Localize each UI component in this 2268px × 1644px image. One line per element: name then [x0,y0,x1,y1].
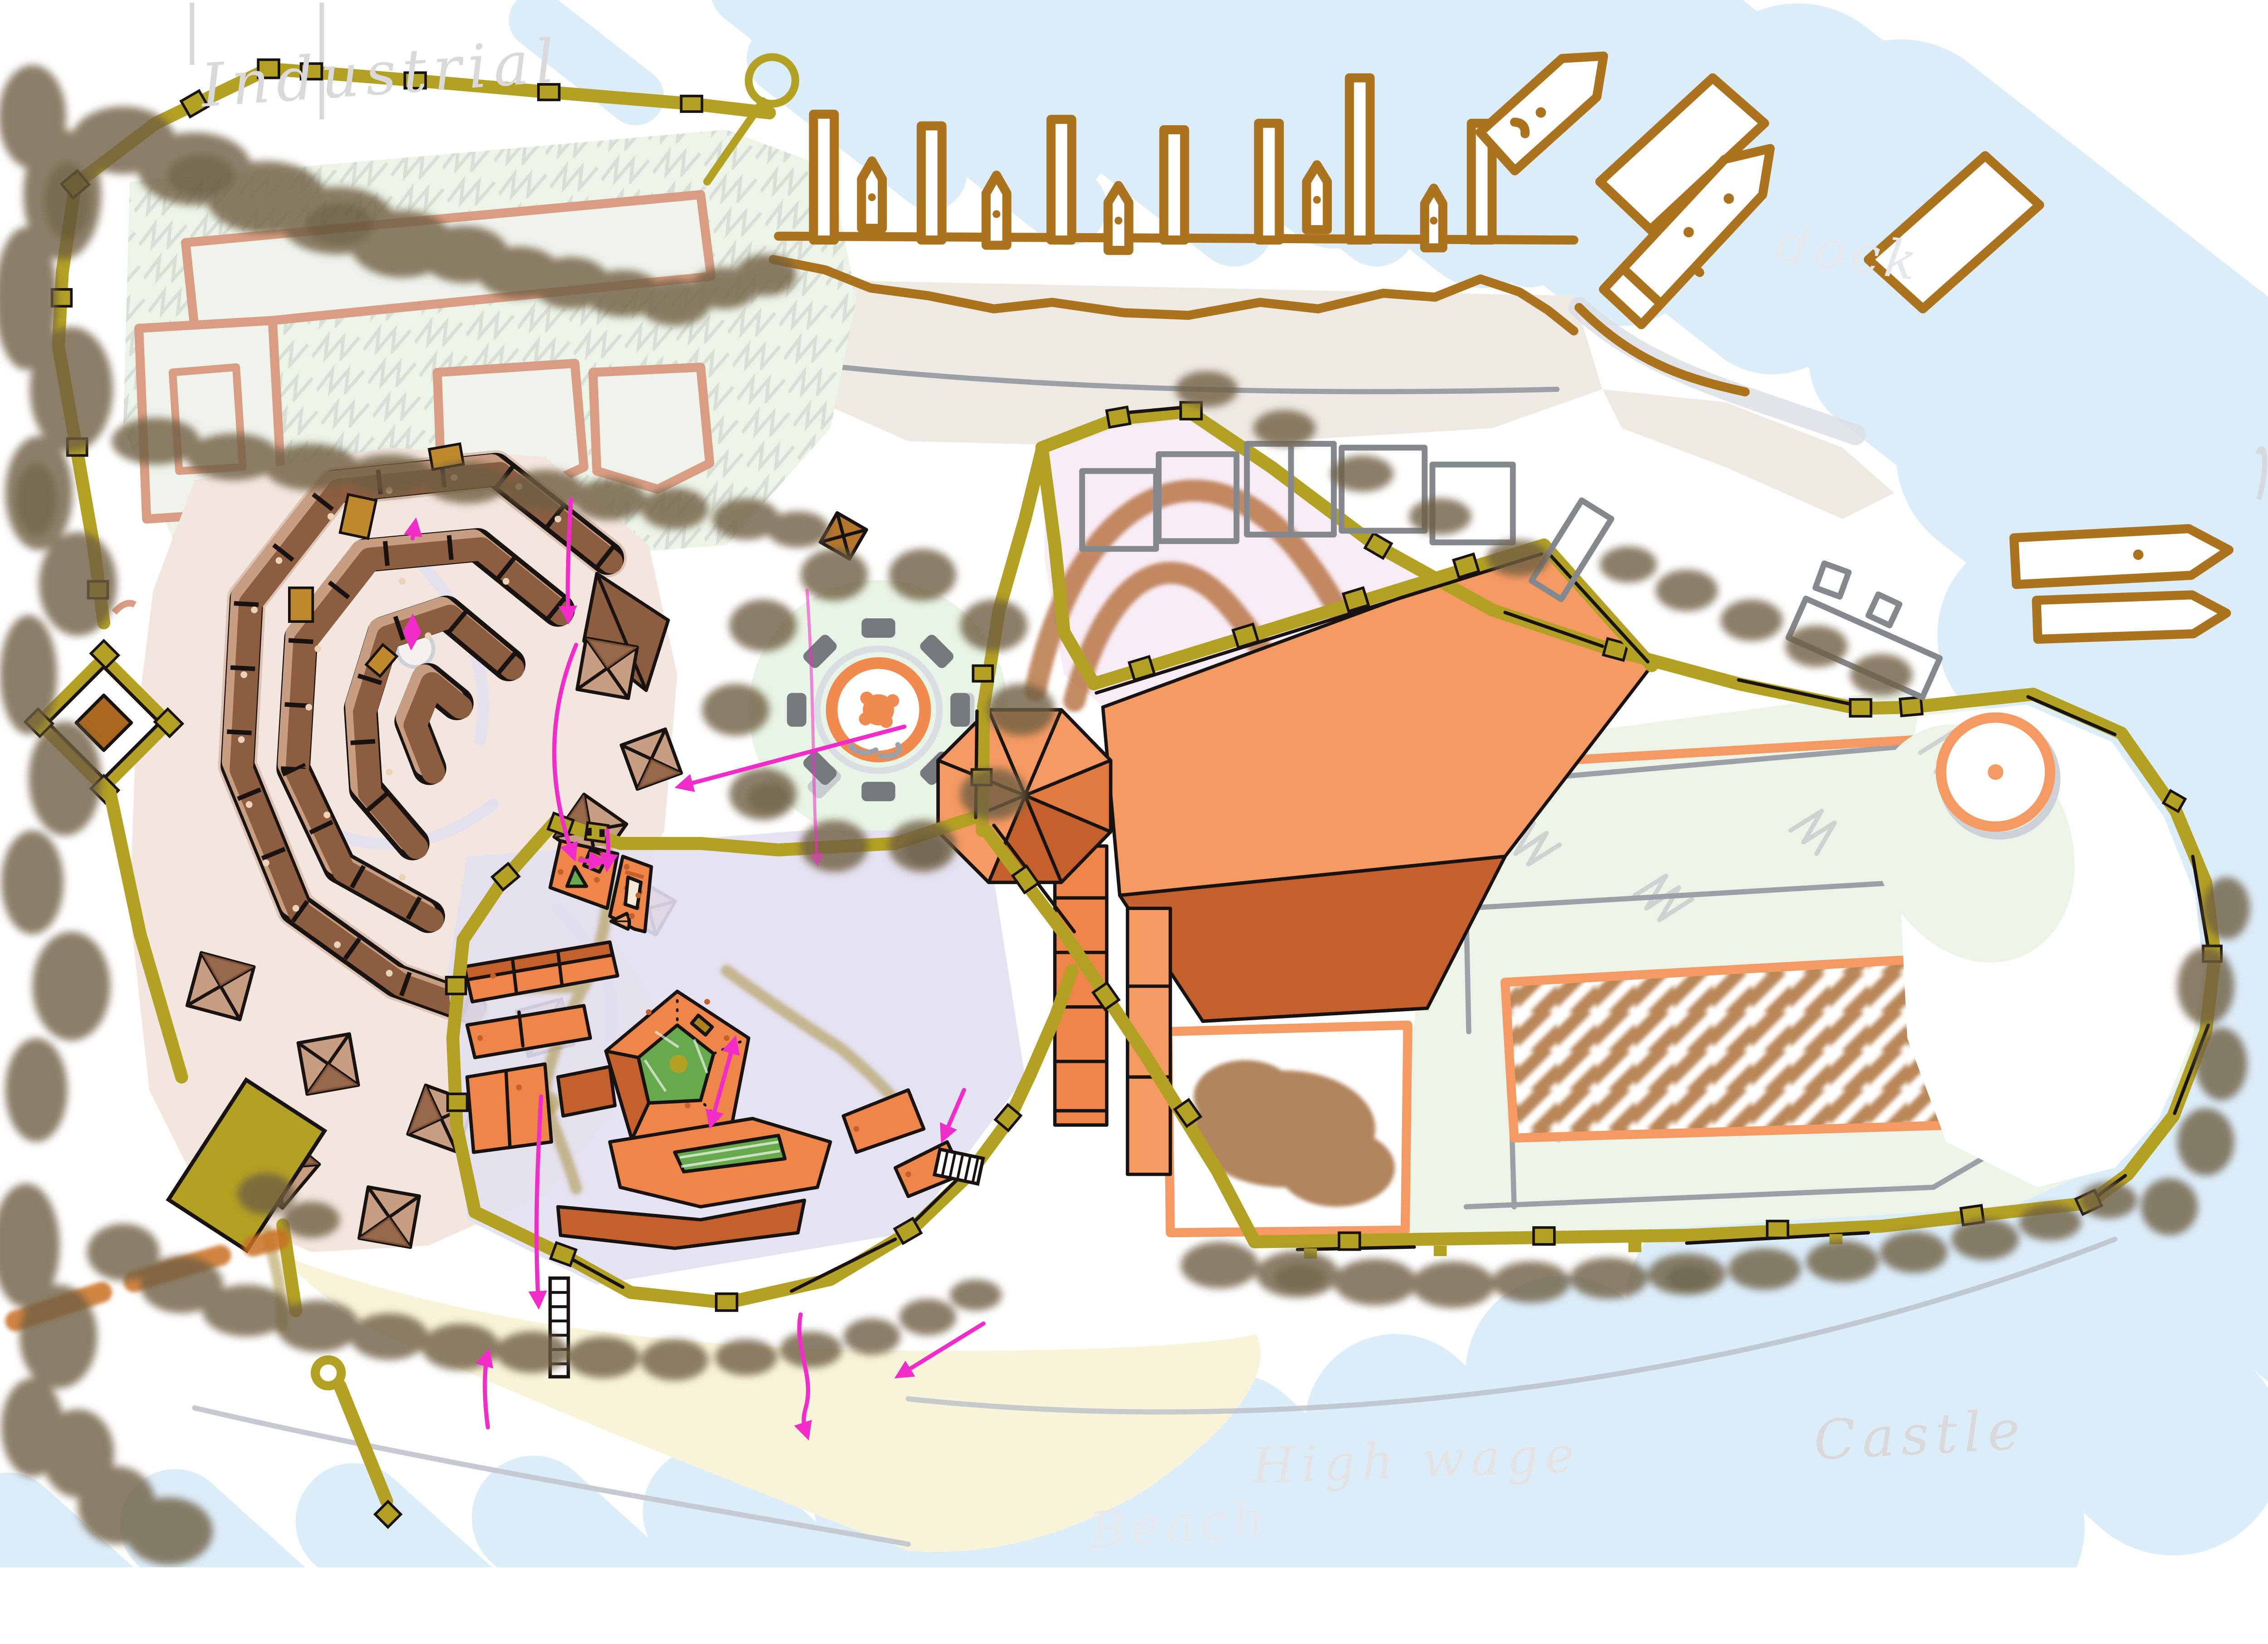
map-canvas: Industrial dock Castle High wage Beach [0,0,2268,1567]
city-map-sketch: Industrial dock Castle High wage Beach [0,0,2268,1567]
label-high-wage: High wage [1250,1426,1581,1495]
fort-road [114,603,135,612]
label-castle: Castle [1812,1398,2028,1473]
castle-courtyard [1168,1025,1408,1233]
label-industrial: Industrial [198,27,563,121]
